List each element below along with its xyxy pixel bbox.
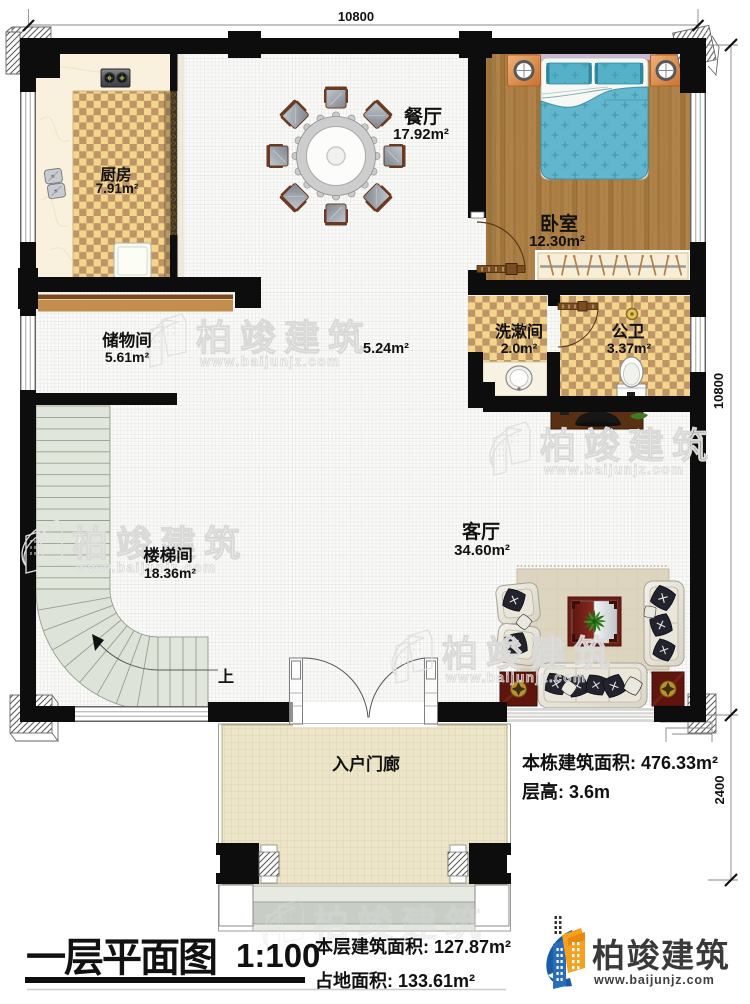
- svg-text:洗漱间: 洗漱间: [495, 322, 543, 341]
- svg-text:餐厅: 餐厅: [404, 105, 442, 128]
- svg-text:柏竣建筑: 柏竣建筑: [442, 633, 618, 674]
- svg-text:客厅: 客厅: [462, 520, 500, 543]
- svg-text:www.baijunjz.com: www.baijunjz.com: [543, 462, 685, 477]
- svg-text:34.60m²: 34.60m²: [454, 542, 510, 559]
- svg-text:18.36m²: 18.36m²: [144, 565, 196, 581]
- svg-text:2400: 2400: [712, 776, 727, 805]
- svg-text:www.baijunjz.com: www.baijunjz.com: [593, 973, 715, 987]
- svg-text:楼梯间: 楼梯间: [143, 545, 193, 565]
- svg-text:17.92m²: 17.92m²: [393, 126, 449, 143]
- svg-text:12.30m²: 12.30m²: [529, 233, 585, 250]
- svg-text:公卫: 公卫: [612, 322, 645, 341]
- svg-text:10800: 10800: [338, 9, 374, 24]
- svg-text:占地面积: 133.61m²: 占地面积: 133.61m²: [315, 970, 475, 991]
- svg-text:2.0m²: 2.0m²: [501, 340, 538, 356]
- svg-text:3.37m²: 3.37m²: [607, 340, 652, 356]
- svg-text:www.baijunjz.com: www.baijunjz.com: [445, 670, 587, 685]
- svg-text:储物间: 储物间: [102, 330, 152, 350]
- svg-text:本栋建筑面积: 476.33m²: 本栋建筑面积: 476.33m²: [522, 752, 718, 773]
- svg-text:5.24m²: 5.24m²: [363, 341, 409, 357]
- svg-text:1:100: 1:100: [236, 937, 320, 974]
- svg-text:柏竣建筑: 柏竣建筑: [592, 937, 730, 974]
- svg-text:www.baijunjz.com: www.baijunjz.com: [199, 354, 341, 369]
- svg-text:一层平面图: 一层平面图: [26, 936, 216, 980]
- svg-text:卧室: 卧室: [540, 212, 578, 235]
- svg-text:柏竣建筑: 柏竣建筑: [540, 425, 716, 466]
- svg-text:上: 上: [218, 668, 234, 686]
- svg-text:本层建筑面积: 127.87m²: 本层建筑面积: 127.87m²: [315, 936, 511, 957]
- svg-text:10800: 10800: [711, 373, 726, 409]
- svg-text:入户门廊: 入户门廊: [332, 754, 400, 774]
- svg-text:层高: 3.6m: 层高: 3.6m: [522, 781, 610, 802]
- svg-text:柏竣建筑: 柏竣建筑: [196, 317, 372, 358]
- svg-text:7.91m²: 7.91m²: [96, 181, 139, 196]
- svg-text:5.61m²: 5.61m²: [105, 349, 150, 365]
